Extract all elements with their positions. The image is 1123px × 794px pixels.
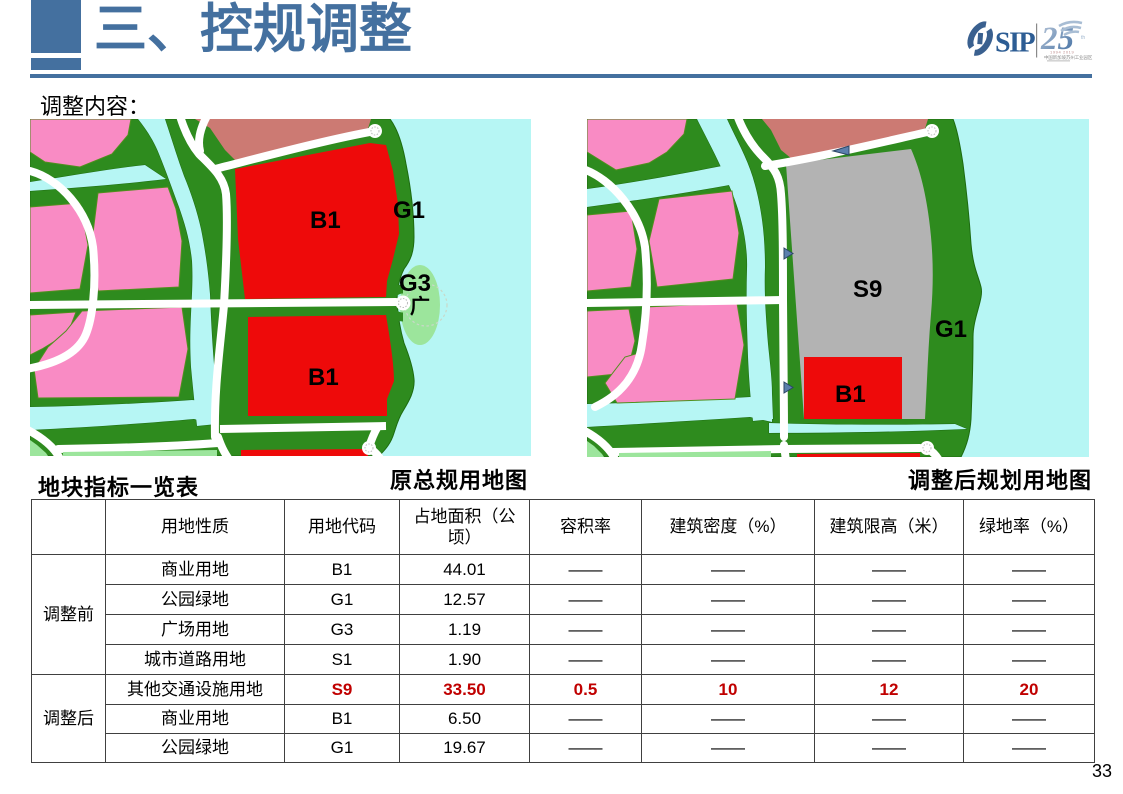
svg-text:B1: B1 — [310, 207, 341, 234]
svg-text:SIP: SIP — [995, 28, 1035, 59]
svg-text:G3: G3 — [399, 270, 431, 297]
svg-text:S9: S9 — [853, 276, 882, 303]
svg-text:th: th — [1081, 35, 1085, 41]
svg-text:B1: B1 — [308, 364, 339, 391]
svg-text:G1: G1 — [935, 316, 967, 343]
svg-text:G1: G1 — [393, 197, 425, 224]
svg-text:1994 2019: 1994 2019 — [1050, 50, 1074, 55]
svg-text:B1: B1 — [835, 381, 866, 408]
svg-text:中国新加坡苏州工业园区: 中国新加坡苏州工业园区 — [1044, 54, 1093, 61]
svg-text:广: 广 — [410, 294, 430, 318]
